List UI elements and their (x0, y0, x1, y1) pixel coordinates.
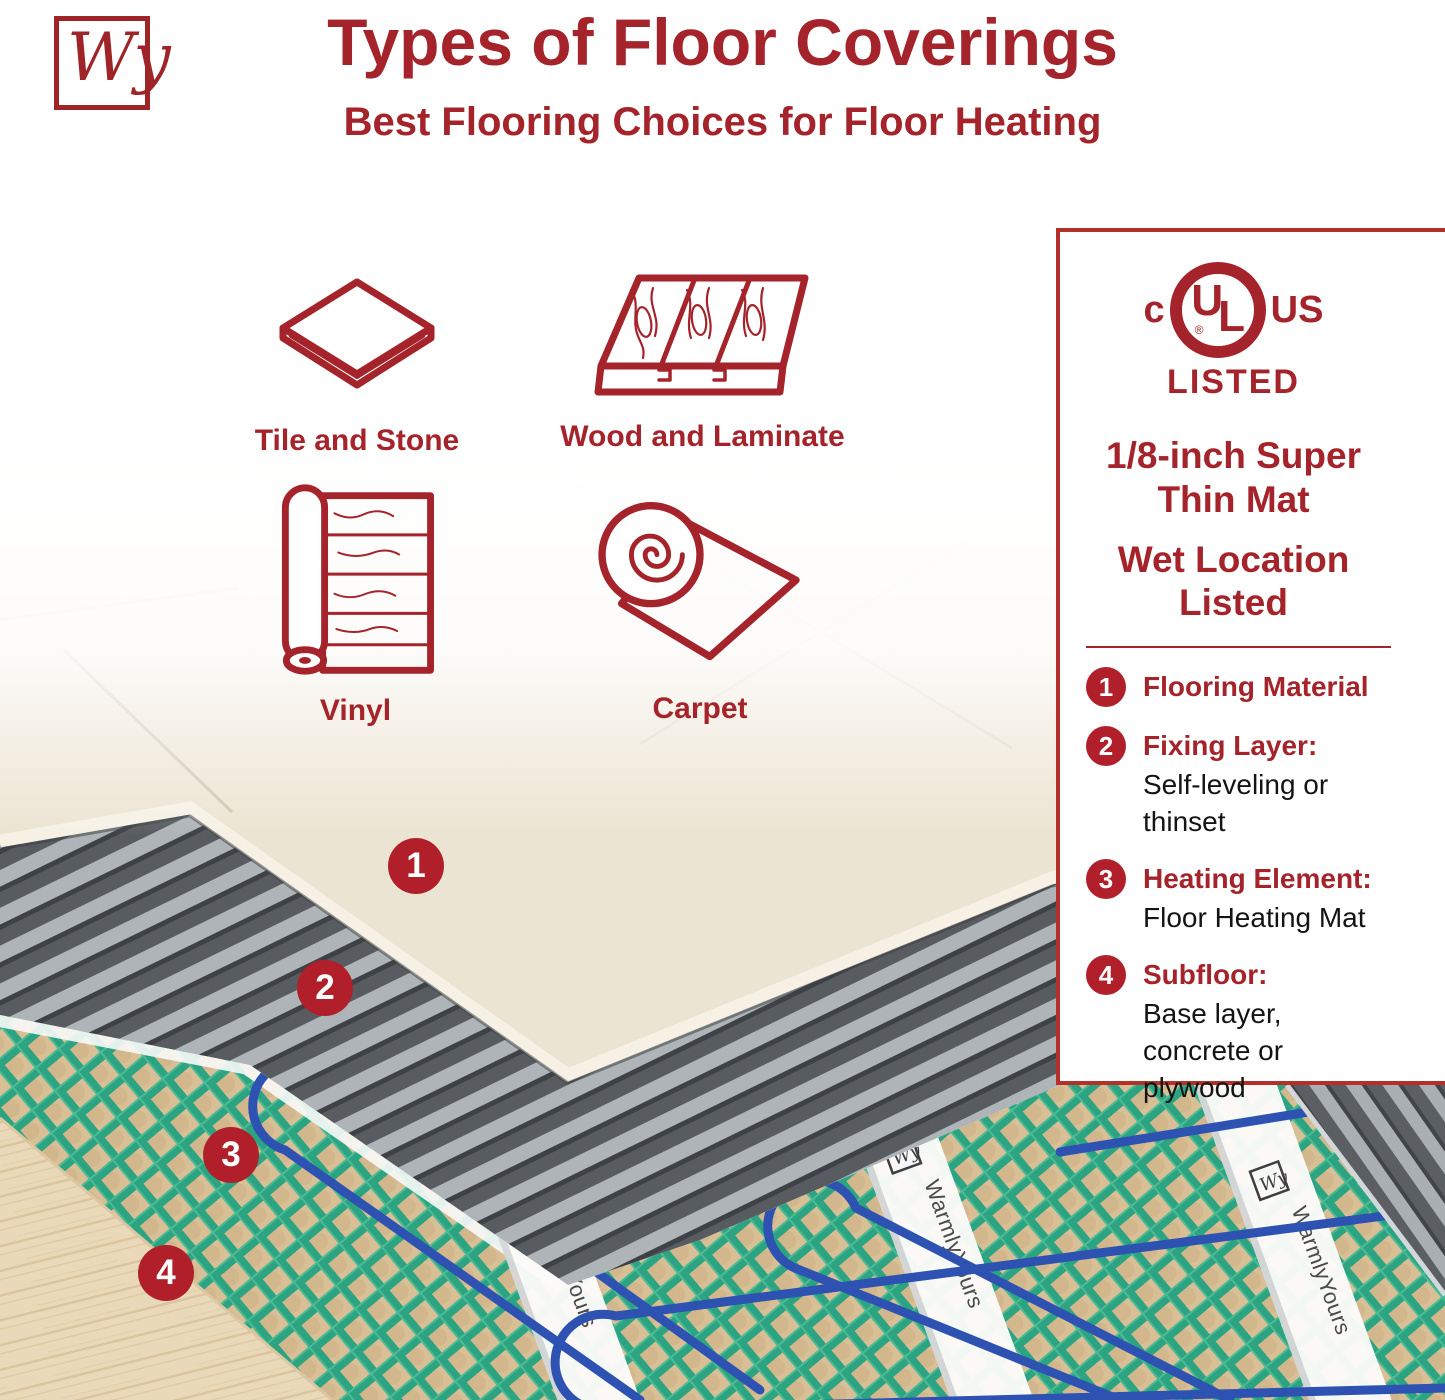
panel-divider (1086, 646, 1391, 648)
covering-label: Carpet (652, 692, 747, 726)
callout-3-heating-element: 3 (203, 1127, 259, 1183)
callout-2-fixing-layer: 2 (297, 960, 353, 1016)
covering-wood-and-laminate: Wood and Laminate (505, 270, 900, 454)
ul-mark-circle: UL ® (1170, 262, 1266, 358)
legend-item-description: Floor Heating Mat (1143, 899, 1372, 936)
covering-label: Vinyl (320, 694, 391, 728)
carpet-icon (584, 490, 816, 682)
subheadline-line: Wet Location (1086, 539, 1381, 582)
callout-number: 1 (406, 846, 425, 886)
vinyl-icon (270, 478, 442, 684)
subheadline-line: Listed (1086, 582, 1381, 625)
ul-mark-u: U (1191, 276, 1220, 325)
callout-1-flooring-material: 1 (388, 838, 444, 894)
legend-item-fixing-layer: 2 Fixing Layer: Self-leveling or thinset (1086, 726, 1381, 840)
warmlyyours-logo: Wy (54, 16, 150, 110)
legend-item-title: Subfloor: (1143, 955, 1381, 995)
covering-label: Tile and Stone (255, 424, 459, 458)
page-subtitle: Best Flooring Choices for Floor Heating (0, 100, 1445, 145)
callout-number: 3 (221, 1135, 240, 1175)
ul-mark-l: L (1218, 292, 1242, 341)
legend-number-badge: 3 (1086, 859, 1126, 899)
legend-item-title: Flooring Material (1143, 667, 1369, 707)
ul-certification-mark: c UL ® US (1086, 262, 1381, 358)
legend-item-flooring-material: 1 Flooring Material (1086, 667, 1381, 707)
panel-subheadline: Wet Location Listed (1086, 539, 1381, 624)
product-info-panel: c UL ® US LISTED 1/8-inch Super Thin Mat… (1056, 228, 1445, 1085)
legend-number-badge: 4 (1086, 955, 1126, 995)
covering-label: Wood and Laminate (560, 420, 844, 454)
legend-item-title: Heating Element: (1143, 859, 1372, 899)
legend-item-description: Self-leveling or thinset (1143, 766, 1381, 840)
ul-mark-c: c (1144, 289, 1165, 332)
legend-item-subfloor: 4 Subfloor: Base layer, concrete or plyw… (1086, 955, 1381, 1106)
legend-item-title: Fixing Layer: (1143, 726, 1381, 766)
panel-headline: 1/8-inch Super Thin Mat (1086, 434, 1381, 521)
layer-legend-list: 1 Flooring Material 2 Fixing Layer: Self… (1086, 667, 1381, 1106)
headline-line: Thin Mat (1086, 478, 1381, 522)
legend-item-description: Base layer, concrete or plywood (1143, 995, 1381, 1106)
headline-line: 1/8-inch Super (1086, 434, 1381, 478)
warmlyyours-logo-text: Wy (67, 15, 171, 101)
callout-number: 2 (315, 968, 334, 1008)
covering-carpet: Carpet (555, 490, 845, 726)
wood-and-laminate-icon (587, 270, 819, 410)
registered-trademark-symbol: ® (1195, 323, 1204, 337)
legend-number-badge: 2 (1086, 726, 1126, 766)
ul-listed-text: LISTED (1086, 363, 1381, 402)
covering-vinyl: Vinyl (248, 478, 463, 728)
callout-4-subfloor: 4 (138, 1245, 194, 1301)
legend-number-badge: 1 (1086, 667, 1126, 707)
legend-item-heating-element: 3 Heating Element: Floor Heating Mat (1086, 859, 1381, 936)
tile-and-stone-icon (271, 276, 443, 414)
ul-mark-us: US (1271, 289, 1324, 332)
covering-tile-and-stone: Tile and Stone (232, 276, 482, 458)
page-title: Types of Floor Coverings (0, 4, 1445, 80)
callout-number: 4 (156, 1253, 175, 1293)
